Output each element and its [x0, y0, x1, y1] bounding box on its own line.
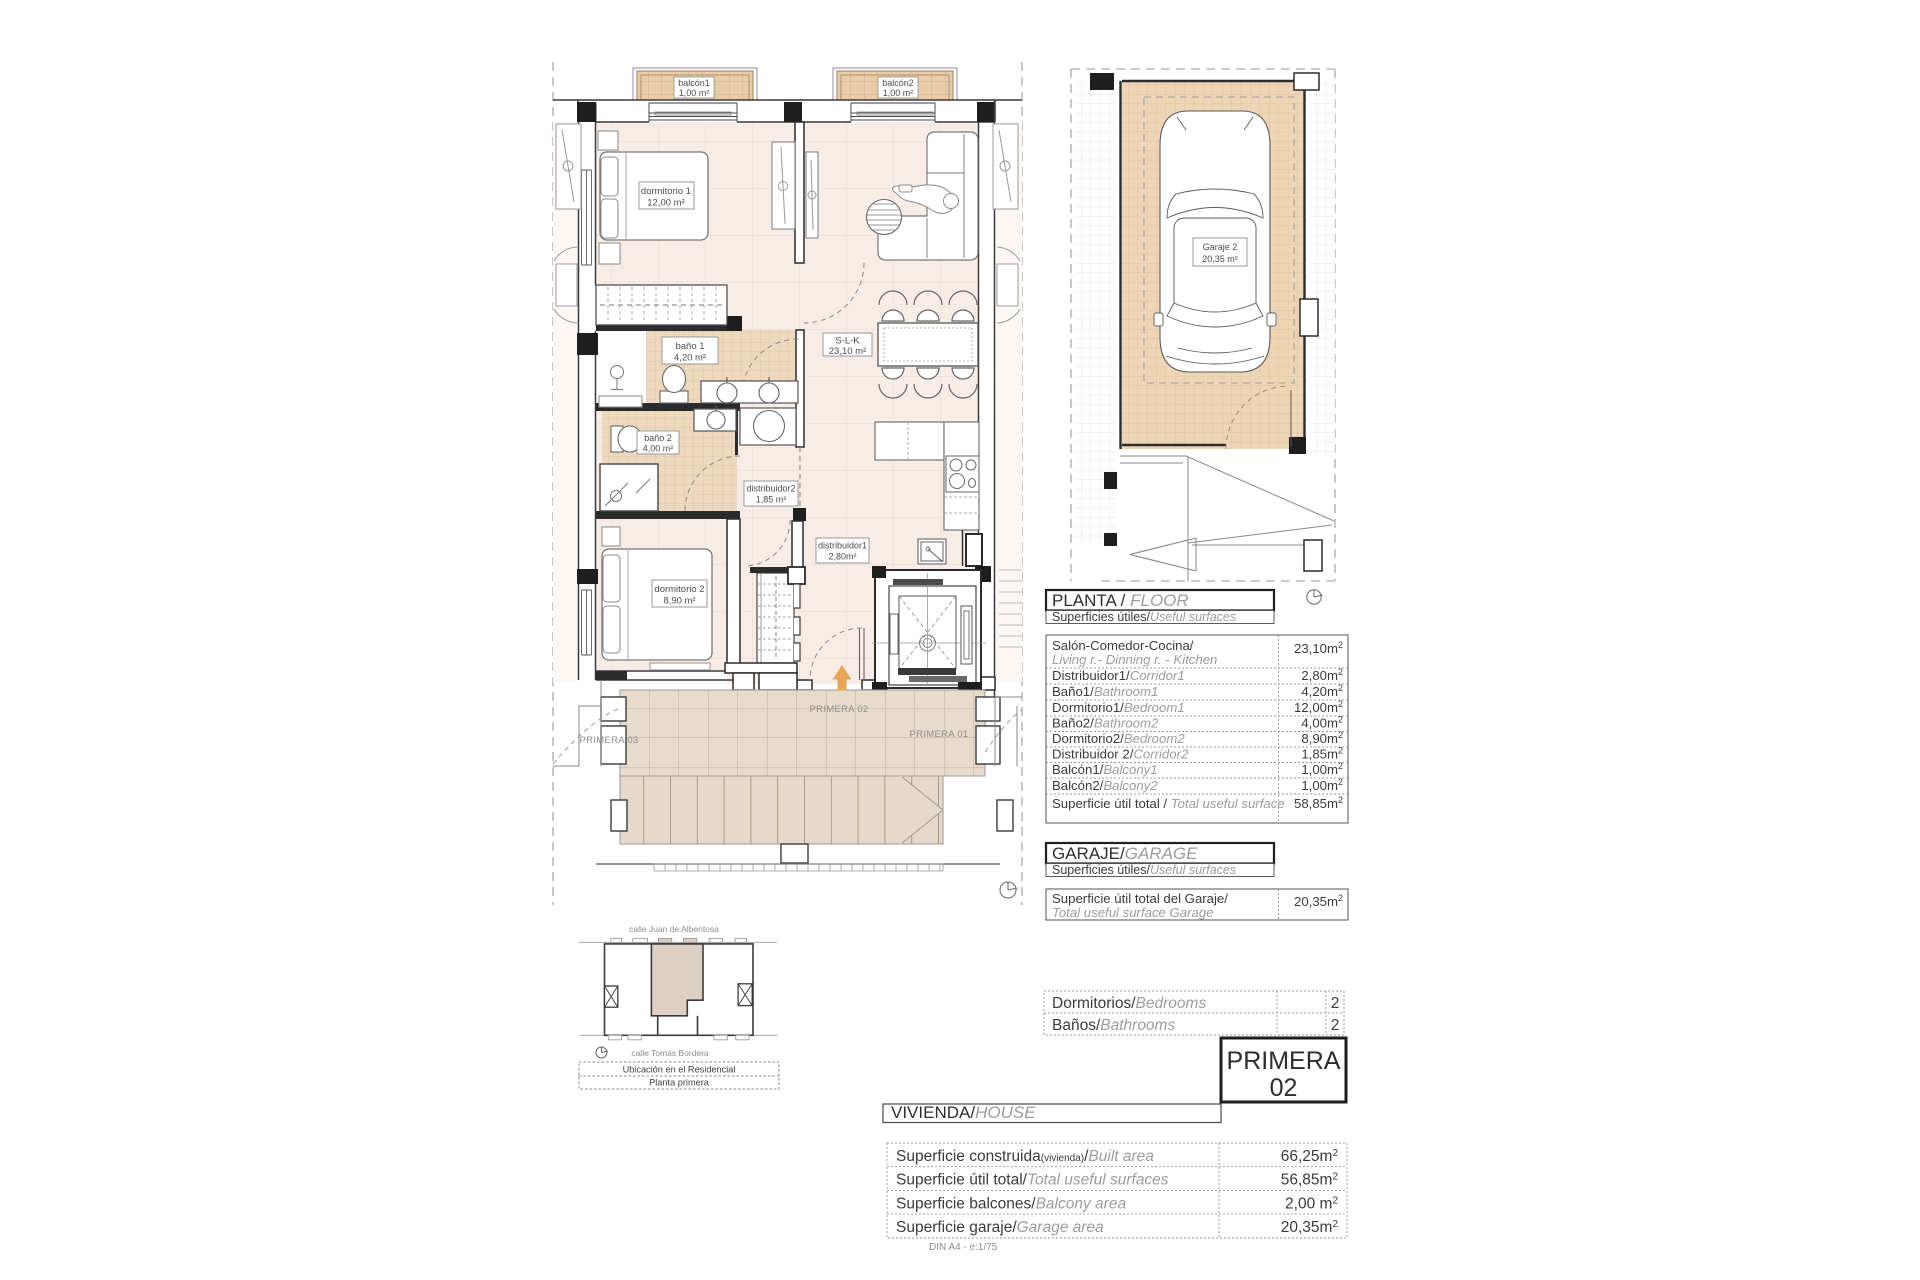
svg-text:Superficies útiles/Useful surf: Superficies útiles/Useful surfaces — [1052, 863, 1236, 877]
svg-text:4,00 m²: 4,00 m² — [643, 444, 674, 454]
svg-text:20,35m2: 20,35m2 — [1281, 1219, 1339, 1236]
svg-text:4,00m2: 4,00m2 — [1301, 715, 1343, 731]
svg-text:8,90 m²: 8,90 m² — [663, 596, 695, 607]
svg-text:baño 1: baño 1 — [675, 341, 704, 352]
svg-text:Balcón1/Balcony1: Balcón1/Balcony1 — [1052, 762, 1158, 777]
svg-text:balcón1: balcón1 — [678, 78, 710, 88]
svg-text:Superficies útiles/Useful surf: Superficies útiles/Useful surfaces — [1052, 610, 1236, 624]
svg-text:Dormitorios/Bedrooms: Dormitorios/Bedrooms — [1052, 995, 1206, 1012]
svg-text:12,00m2: 12,00m2 — [1294, 699, 1343, 715]
svg-text:Baño1/Bathroom1: Baño1/Bathroom1 — [1052, 684, 1158, 699]
svg-text:Superficie balcones/Balcony ar: Superficie balcones/Balcony area — [896, 1195, 1126, 1212]
svg-text:56,85m2: 56,85m2 — [1281, 1172, 1339, 1189]
svg-text:Living r.- Dinning r. - Kitche: Living r.- Dinning r. - Kitchen — [1052, 652, 1217, 667]
svg-text:balcón2: balcón2 — [882, 78, 914, 88]
svg-text:1,85 m²: 1,85 m² — [756, 495, 787, 505]
svg-text:PRIMERA: PRIMERA — [1227, 1047, 1341, 1075]
svg-text:Superficie útil total / Total: Superficie útil total / Total useful sur… — [1052, 796, 1285, 811]
svg-text:distribuidor2: distribuidor2 — [746, 484, 795, 494]
svg-text:20,35 m²: 20,35 m² — [1202, 254, 1238, 264]
svg-text:Dormitorio1/Bedroom1: Dormitorio1/Bedroom1 — [1052, 700, 1185, 715]
svg-text:2,00 m2: 2,00 m2 — [1285, 1195, 1338, 1212]
svg-text:Superficie útil total del Gara: Superficie útil total del Garaje/ — [1052, 891, 1228, 906]
svg-text:23,10m2: 23,10m2 — [1294, 640, 1343, 656]
svg-text:58,85m2: 58,85m2 — [1294, 795, 1343, 811]
svg-text:1,00m2: 1,00m2 — [1301, 761, 1343, 777]
svg-text:2: 2 — [1331, 995, 1340, 1012]
svg-text:Garaje 2: Garaje 2 — [1203, 242, 1238, 252]
svg-text:02: 02 — [1270, 1074, 1298, 1102]
svg-text:dormitorio 2: dormitorio 2 — [654, 584, 704, 595]
svg-text:1,00 m²: 1,00 m² — [883, 88, 914, 98]
svg-text:PRIMERA 01: PRIMERA 01 — [910, 729, 969, 740]
svg-text:calle Tomás Bordera: calle Tomás Bordera — [631, 1048, 709, 1058]
svg-text:1,85m2: 1,85m2 — [1301, 746, 1343, 762]
svg-text:Distribuidor1/Corridor1: Distribuidor1/Corridor1 — [1052, 668, 1185, 683]
svg-text:Superficie garaje/Garage area: Superficie garaje/Garage area — [896, 1219, 1104, 1236]
svg-text:Dormitorio2/Bedroom2: Dormitorio2/Bedroom2 — [1052, 731, 1185, 746]
svg-text:distribuidor1: distribuidor1 — [818, 541, 867, 551]
svg-text:Superficie construida(vivienda: Superficie construida(vivienda)/Built ar… — [896, 1148, 1154, 1165]
svg-text:2: 2 — [1331, 1017, 1340, 1034]
svg-text:2,80m²: 2,80m² — [828, 552, 856, 562]
svg-text:12,00 m²: 12,00 m² — [647, 198, 685, 209]
svg-text:4,20 m²: 4,20 m² — [674, 353, 706, 364]
svg-text:Planta primera: Planta primera — [649, 1078, 710, 1088]
svg-text:Total useful surface Garage: Total useful surface Garage — [1052, 905, 1214, 920]
svg-text:baño 2: baño 2 — [644, 433, 672, 443]
svg-text:66,25m2: 66,25m2 — [1281, 1148, 1339, 1165]
svg-text:VIVIENDA/HOUSE: VIVIENDA/HOUSE — [891, 1103, 1036, 1122]
svg-text:dormitorio 1: dormitorio 1 — [641, 186, 691, 197]
svg-text:1,00 m²: 1,00 m² — [679, 88, 710, 98]
svg-text:Distribuidor 2/Corridor2: Distribuidor 2/Corridor2 — [1052, 747, 1189, 762]
svg-text:PRIMERA 02: PRIMERA 02 — [810, 704, 869, 715]
svg-text:DIN A4 - e:1/75: DIN A4 - e:1/75 — [929, 1242, 998, 1253]
svg-text:20,35m2: 20,35m2 — [1294, 893, 1343, 909]
svg-text:8,90m2: 8,90m2 — [1301, 730, 1343, 746]
svg-text:S-L-K: S-L-K — [835, 336, 860, 347]
svg-text:Baños/Bathrooms: Baños/Bathrooms — [1052, 1017, 1175, 1034]
svg-text:23,10 m²: 23,10 m² — [829, 346, 867, 357]
svg-text:1,00m2: 1,00m2 — [1301, 777, 1343, 793]
svg-text:PRIMERA 03: PRIMERA 03 — [580, 735, 639, 746]
svg-text:calle Juan de Albentosa: calle Juan de Albentosa — [629, 924, 719, 934]
svg-text:4,20m2: 4,20m2 — [1301, 683, 1343, 699]
svg-text:PLANTA / FLOOR: PLANTA / FLOOR — [1052, 591, 1189, 610]
svg-text:Superficie útil total/Total us: Superficie útil total/Total useful surfa… — [896, 1172, 1169, 1189]
svg-text:Baño2/Bathroom2: Baño2/Bathroom2 — [1052, 716, 1159, 731]
svg-text:Ubicación en el Residencial: Ubicación en el Residencial — [623, 1065, 736, 1075]
svg-text:Salón-Comedor-Cocina/: Salón-Comedor-Cocina/ — [1052, 638, 1194, 653]
svg-text:GARAJE/GARAGE: GARAJE/GARAGE — [1052, 844, 1198, 863]
svg-text:2,80m2: 2,80m2 — [1301, 667, 1343, 683]
svg-text:Balcón2/Balcony2: Balcón2/Balcony2 — [1052, 778, 1158, 793]
